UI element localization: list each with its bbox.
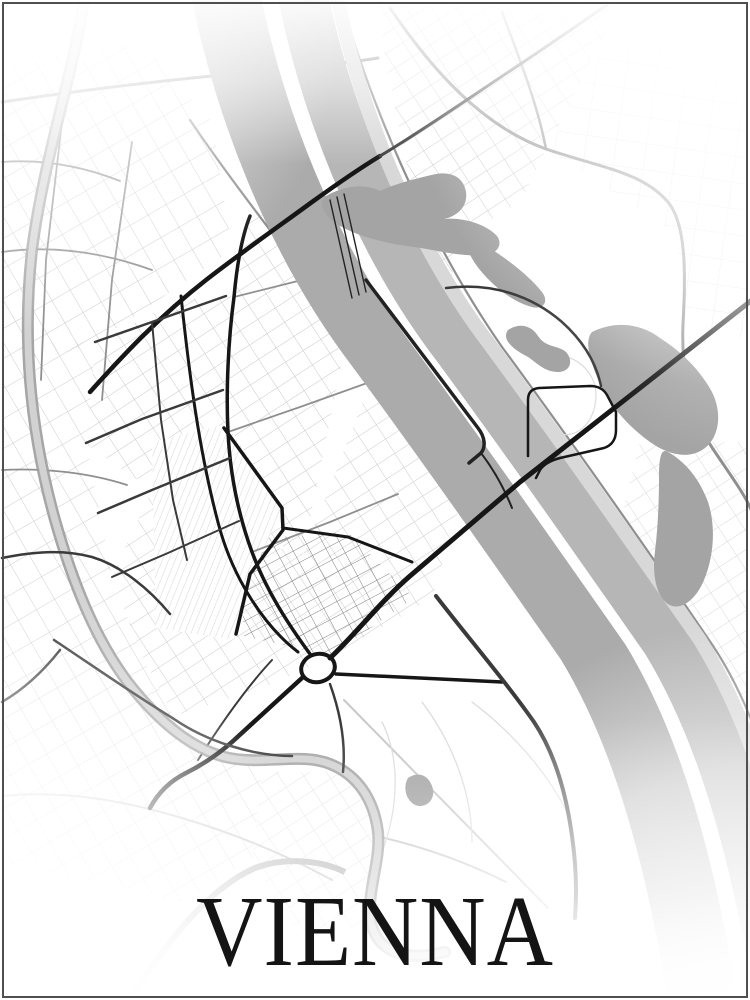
vienna-map-poster: VIENNA [0,0,750,1000]
vienna-map-canvas [0,0,750,1000]
poster-title: VIENNA [34,881,717,982]
